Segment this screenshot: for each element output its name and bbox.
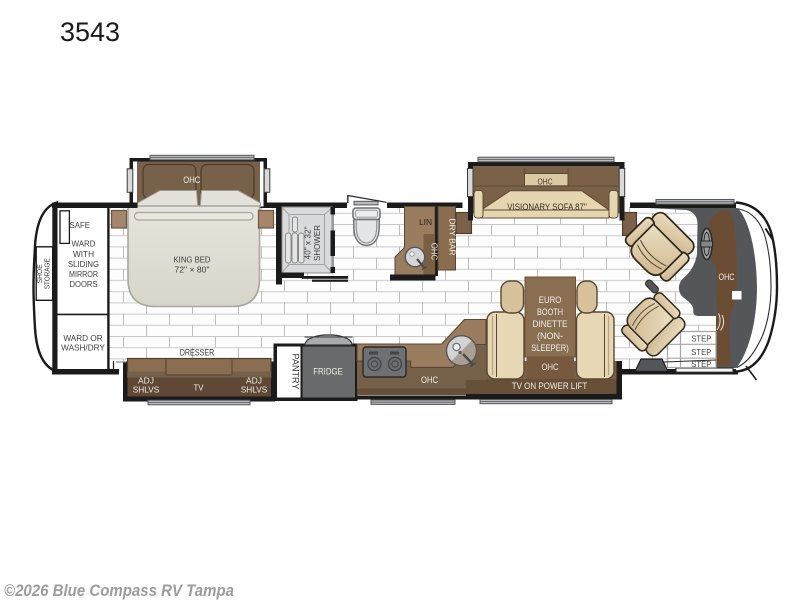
svg-text:STEP: STEP: [691, 359, 711, 369]
svg-text:FRIDGE: FRIDGE: [313, 366, 343, 376]
svg-text:SLIDING: SLIDING: [68, 260, 99, 269]
svg-text:SHOE: SHOE: [37, 264, 44, 283]
svg-text:STORAGE: STORAGE: [45, 258, 52, 289]
svg-text:OHC: OHC: [538, 176, 553, 186]
svg-text:SHLVS: SHLVS: [133, 384, 160, 394]
svg-text:OHC: OHC: [183, 175, 201, 185]
svg-text:WITH: WITH: [73, 250, 94, 259]
svg-text:OHC: OHC: [421, 375, 439, 385]
svg-text:OHC: OHC: [430, 243, 440, 261]
svg-text:SAFE: SAFE: [70, 221, 91, 230]
svg-text:WASH/DRY: WASH/DRY: [61, 344, 105, 353]
svg-text:WARD OR: WARD OR: [63, 334, 102, 343]
svg-text:SHLVS: SHLVS: [241, 384, 268, 394]
svg-text:OHC: OHC: [542, 362, 560, 372]
svg-text:LIN: LIN: [419, 217, 432, 227]
svg-text:MIRROR: MIRROR: [69, 270, 98, 279]
svg-text:STEP: STEP: [691, 347, 711, 357]
svg-text:SHOWER: SHOWER: [313, 225, 322, 261]
svg-text:©2026 Blue Compass RV Tampa: ©2026 Blue Compass RV Tampa: [4, 582, 234, 600]
svg-text:TV: TV: [194, 383, 204, 393]
svg-text:3543: 3543: [60, 17, 120, 47]
svg-text:40" x 32": 40" x 32": [304, 226, 313, 259]
svg-text:WARD: WARD: [72, 240, 96, 249]
svg-text:OHC: OHC: [719, 272, 736, 282]
svg-text:SLEEPER): SLEEPER): [531, 343, 569, 353]
svg-text:72" × 80": 72" × 80": [175, 265, 210, 274]
svg-text:DOORS: DOORS: [70, 280, 98, 289]
svg-text:TV ON POWER LIFT: TV ON POWER LIFT: [512, 381, 588, 391]
svg-text:(NON-: (NON-: [537, 331, 563, 341]
svg-text:BOOTH: BOOTH: [537, 307, 563, 317]
svg-text:KING BED: KING BED: [174, 256, 211, 265]
svg-text:EURO: EURO: [539, 295, 562, 305]
svg-text:STEP: STEP: [691, 334, 711, 344]
svg-text:PANTRY: PANTRY: [291, 354, 301, 390]
svg-text:DINETTE: DINETTE: [533, 319, 568, 329]
svg-text:VISIONARY SOFA 87": VISIONARY SOFA 87": [507, 202, 587, 212]
svg-text:DRESSER: DRESSER: [180, 348, 215, 358]
